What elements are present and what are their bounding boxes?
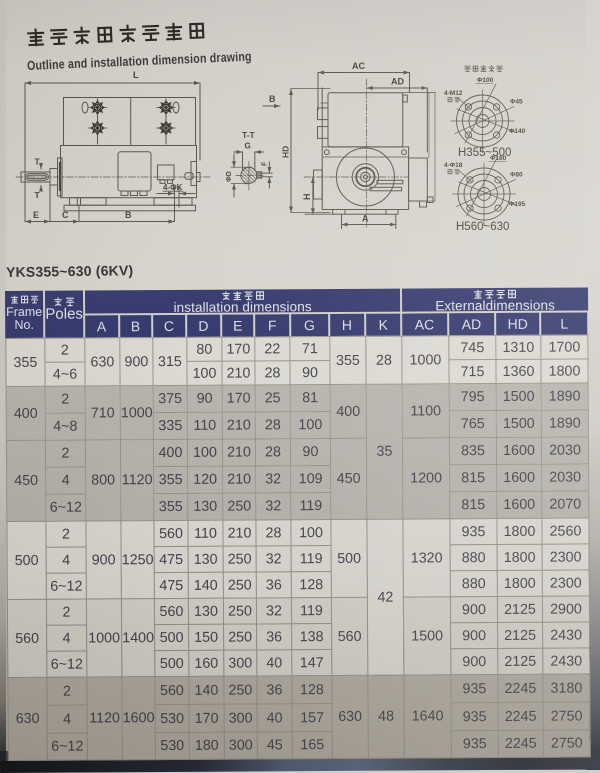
- svg-text:AD: AD: [391, 77, 404, 87]
- svg-text:HD: HD: [281, 146, 291, 158]
- svg-text:H: H: [302, 194, 312, 201]
- svg-text:Φ195: Φ195: [509, 201, 526, 208]
- svg-text:Φ80: Φ80: [510, 172, 523, 179]
- svg-text:T-T: T-T: [242, 130, 256, 140]
- svg-text:4-M12: 4-M12: [444, 90, 463, 97]
- svg-text:Φ160: Φ160: [490, 155, 507, 162]
- svg-text:4-ΦK: 4-ΦK: [163, 183, 183, 192]
- svg-text:T: T: [35, 190, 41, 200]
- svg-text:C: C: [62, 210, 69, 220]
- svg-text:Φ140: Φ140: [509, 128, 526, 135]
- svg-text:E: E: [33, 210, 39, 220]
- svg-text:B: B: [269, 94, 276, 104]
- svg-text:F: F: [262, 161, 269, 166]
- svg-text:G: G: [245, 142, 251, 151]
- svg-text:B: B: [125, 210, 132, 220]
- svg-text:T: T: [35, 157, 41, 167]
- svg-text:Φ100: Φ100: [477, 77, 494, 84]
- svg-text:AC: AC: [352, 61, 365, 71]
- svg-text:L: L: [133, 70, 139, 81]
- svg-text:4-Φ18: 4-Φ18: [444, 162, 463, 169]
- svg-text:H560~630: H560~630: [456, 221, 509, 233]
- svg-text:ΦD: ΦD: [226, 171, 233, 182]
- svg-text:Φ45: Φ45: [510, 99, 523, 106]
- svg-text:A: A: [362, 214, 369, 224]
